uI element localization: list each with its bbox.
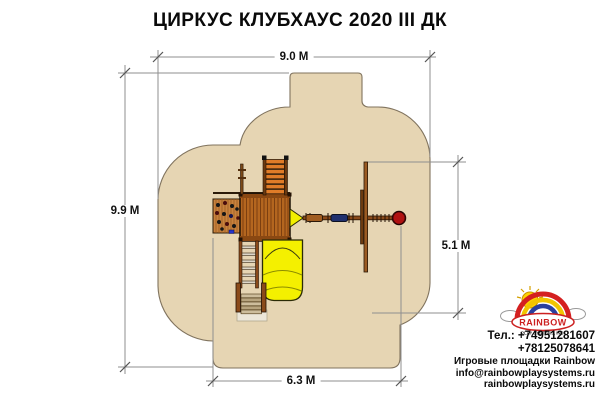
clubhouse-deck <box>239 193 292 242</box>
ball-swing <box>393 212 406 225</box>
contact-block: Тел.: +74951281607 +78125078641 Игровые … <box>365 330 595 391</box>
phone-secondary: +78125078641 <box>365 343 595 356</box>
dimension-label-top: 9.0 M <box>275 51 314 63</box>
dimension-label-right: 5.1 M <box>437 240 476 252</box>
climbing-wall <box>213 199 242 234</box>
swing-seat <box>306 215 323 222</box>
phone-primary: Тел.: +74951281607 <box>365 330 595 343</box>
swing-seat-blue <box>331 215 348 222</box>
logo-brand-text: RAINBOW <box>519 318 567 328</box>
contact-email: info@rainbowplaysystems.ru <box>365 368 595 380</box>
rainbow-logo: RAINBOW PLAY SYSTEMS, INC. <box>501 286 586 336</box>
dimension-label-bottom: 6.3 M <box>282 375 321 387</box>
tube-slide <box>263 240 303 301</box>
dimension-label-left: 9.9 M <box>106 205 145 217</box>
plan-sheet: ЦИРКУС КЛУБХАУС 2020 III ДК <box>0 0 600 400</box>
access-ramp <box>262 156 289 196</box>
brand-line: Игровые площадки Rainbow <box>365 356 595 368</box>
contact-website: rainbowplaysystems.ru <box>365 379 595 391</box>
